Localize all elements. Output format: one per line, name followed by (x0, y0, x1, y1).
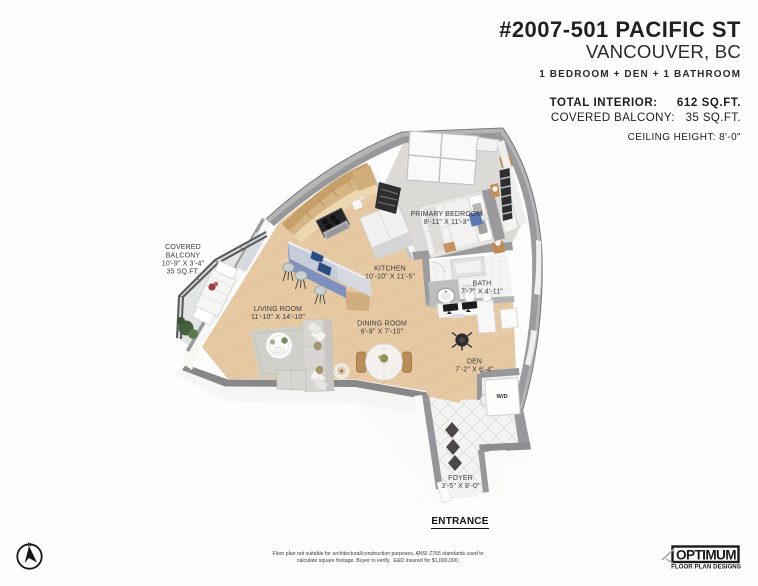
svg-text:W/D: W/D (496, 394, 507, 400)
svg-text:N: N (28, 543, 32, 549)
svg-text:FOYER: FOYER (448, 475, 473, 482)
svg-text:LIVING ROOM: LIVING ROOM (254, 306, 302, 313)
svg-text:6'-9" X 7'-10": 6'-9" X 7'-10" (361, 329, 404, 336)
svg-text:FLOOR PLAN DESIGNS: FLOOR PLAN DESIGNS (671, 564, 741, 571)
svg-text:DEN: DEN (467, 359, 482, 366)
svg-text:7'-7" X 4'-11": 7'-7" X 4'-11" (461, 289, 503, 296)
svg-text:10'-9" X 3'-4": 10'-9" X 3'-4" (162, 261, 205, 268)
svg-text:OPTIMUM: OPTIMUM (676, 548, 736, 563)
svg-text:35 SQ.FT.: 35 SQ.FT. (167, 269, 200, 276)
svg-text:KITCHEN: KITCHEN (374, 265, 406, 272)
svg-text:BALCONY: BALCONY (166, 253, 201, 260)
svg-text:8'-11" X 11'-3": 8'-11" X 11'-3" (424, 219, 470, 226)
svg-text:BATH: BATH (473, 281, 492, 288)
svg-text:PRIMARY BEDROOM: PRIMARY BEDROOM (410, 211, 482, 218)
svg-text:DINING ROOM: DINING ROOM (357, 320, 407, 327)
svg-text:11'-10" X 14'-10": 11'-10" X 14'-10" (251, 314, 305, 321)
svg-text:10'-10" X 11'-5": 10'-10" X 11'-5" (365, 273, 415, 280)
svg-text:COVERED: COVERED (165, 244, 201, 251)
svg-text:3'-5" X 8'-0": 3'-5" X 8'-0" (441, 483, 480, 490)
svg-text:7'-2" X 6'-4": 7'-2" X 6'-4" (455, 367, 494, 374)
